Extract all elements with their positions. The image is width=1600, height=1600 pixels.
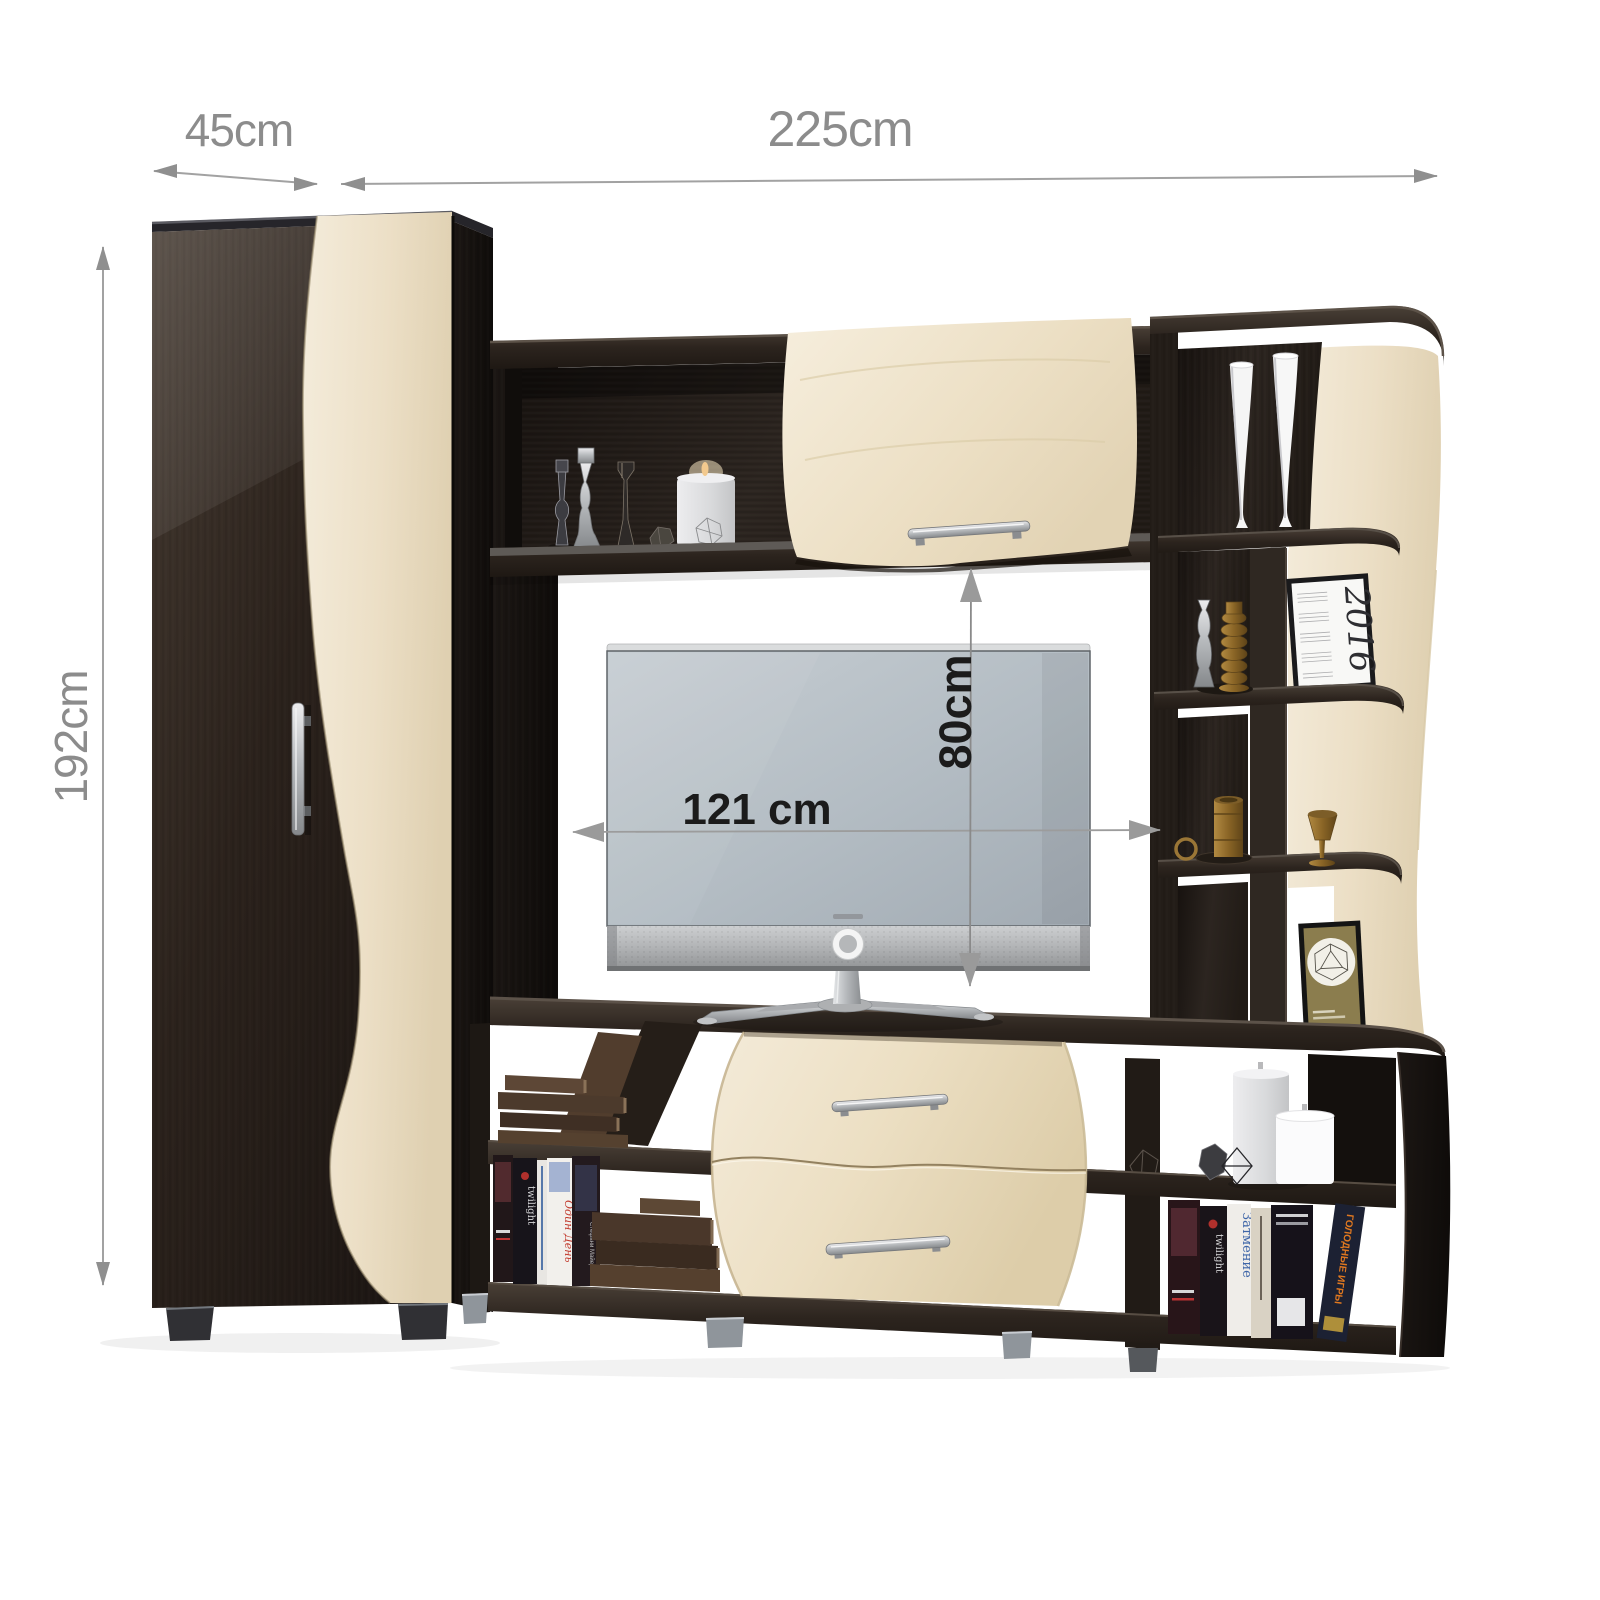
tv-logo (833, 914, 863, 919)
tower-center-divider (1250, 547, 1286, 1032)
wardrobe (152, 211, 493, 1341)
wardrobe-handle (292, 703, 311, 835)
calendar-2016: 2016 (1286, 573, 1383, 693)
calendar-year-text: 2016 (1336, 584, 1382, 674)
book-spine-text: twilight (525, 1186, 536, 1225)
dimension-label-wardrobe-width: 45cm (139, 104, 339, 156)
dimension-label-tv-height: 80cm (926, 602, 986, 822)
tv (607, 644, 1090, 1032)
geometric-art-frame (1298, 920, 1366, 1033)
dimension-label-tv-width: 121 cm (657, 784, 857, 836)
dimension-label-total-width: 225cm (740, 102, 940, 156)
book-spine-text: twilight (1213, 1234, 1224, 1273)
wardrobe-foot (398, 1303, 448, 1340)
bench-divider (1125, 1058, 1160, 1350)
tv-bottom-edge (607, 966, 1090, 971)
drawer-unit (712, 1032, 1086, 1306)
gray-candle-icon (677, 477, 735, 547)
standing-books-right: twilight Затмение ГОЛОДНЫЕ ИГРЫ (1168, 1200, 1365, 1342)
product-dimension-image: 2016 (0, 0, 1600, 1600)
brass-cylinder-holder-icon (1214, 800, 1243, 857)
standing-books-left: twilight Один День Стефани Майер (493, 1155, 600, 1286)
dimension-label-total-height: 192cm (41, 627, 101, 847)
wardrobe-foot (166, 1306, 214, 1341)
right-shelf-tower: 2016 (1150, 306, 1444, 1035)
bridge-flap-door (782, 318, 1137, 573)
tv-bench: twilight Один День Стефани Майер (462, 997, 1450, 1372)
bench-left-wall (470, 1023, 490, 1314)
